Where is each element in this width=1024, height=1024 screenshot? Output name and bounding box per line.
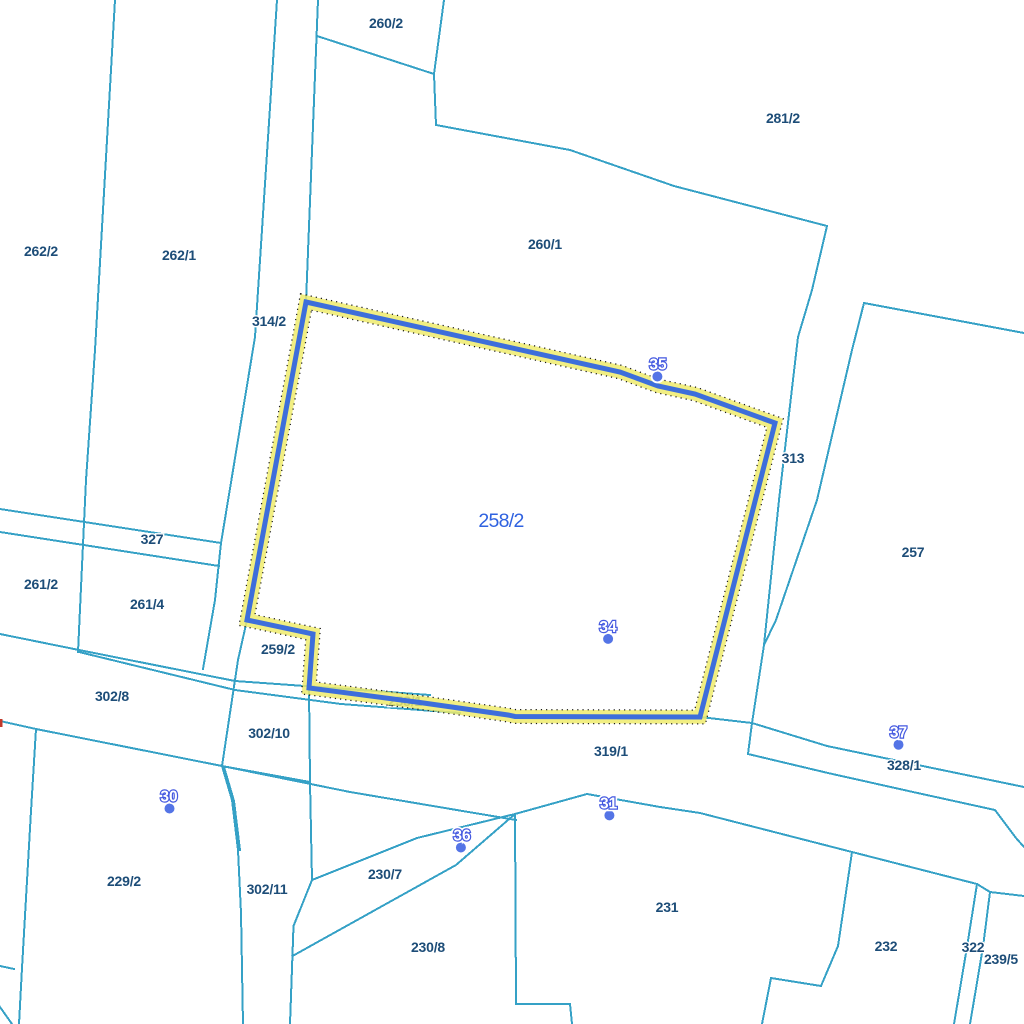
- svg-text:322: 322: [962, 939, 985, 955]
- svg-text:262/1: 262/1: [162, 247, 196, 263]
- svg-text:262/2: 262/2: [24, 243, 58, 259]
- svg-text:259/2: 259/2: [261, 641, 295, 657]
- svg-text:260/1: 260/1: [528, 236, 562, 252]
- svg-text:36: 36: [453, 828, 471, 845]
- svg-text:302/8: 302/8: [95, 688, 129, 704]
- svg-text:319/1: 319/1: [594, 743, 628, 759]
- svg-text:34: 34: [599, 619, 617, 636]
- svg-text:281/2: 281/2: [766, 110, 800, 126]
- svg-text:327: 327: [141, 531, 164, 547]
- svg-text:31: 31: [600, 796, 618, 813]
- svg-text:30: 30: [160, 789, 177, 806]
- svg-text:239/5: 239/5: [984, 951, 1018, 967]
- svg-text:302/10: 302/10: [248, 725, 290, 741]
- svg-text:230/7: 230/7: [368, 866, 402, 882]
- svg-text:328/1: 328/1: [887, 757, 921, 773]
- svg-text:261/4: 261/4: [130, 596, 164, 612]
- svg-text:258/2: 258/2: [478, 510, 523, 532]
- svg-text:35: 35: [649, 357, 667, 374]
- svg-text:261/2: 261/2: [24, 576, 58, 592]
- svg-text:302/11: 302/11: [247, 881, 288, 897]
- svg-text:257: 257: [902, 544, 925, 560]
- svg-text:229/2: 229/2: [107, 873, 141, 889]
- svg-text:260/2: 260/2: [369, 15, 403, 31]
- svg-text:314/2: 314/2: [252, 313, 286, 329]
- svg-text:230/8: 230/8: [411, 939, 445, 955]
- svg-text:231: 231: [656, 899, 679, 915]
- svg-text:232: 232: [875, 938, 898, 954]
- svg-text:313: 313: [782, 450, 805, 466]
- svg-text:37: 37: [890, 725, 907, 742]
